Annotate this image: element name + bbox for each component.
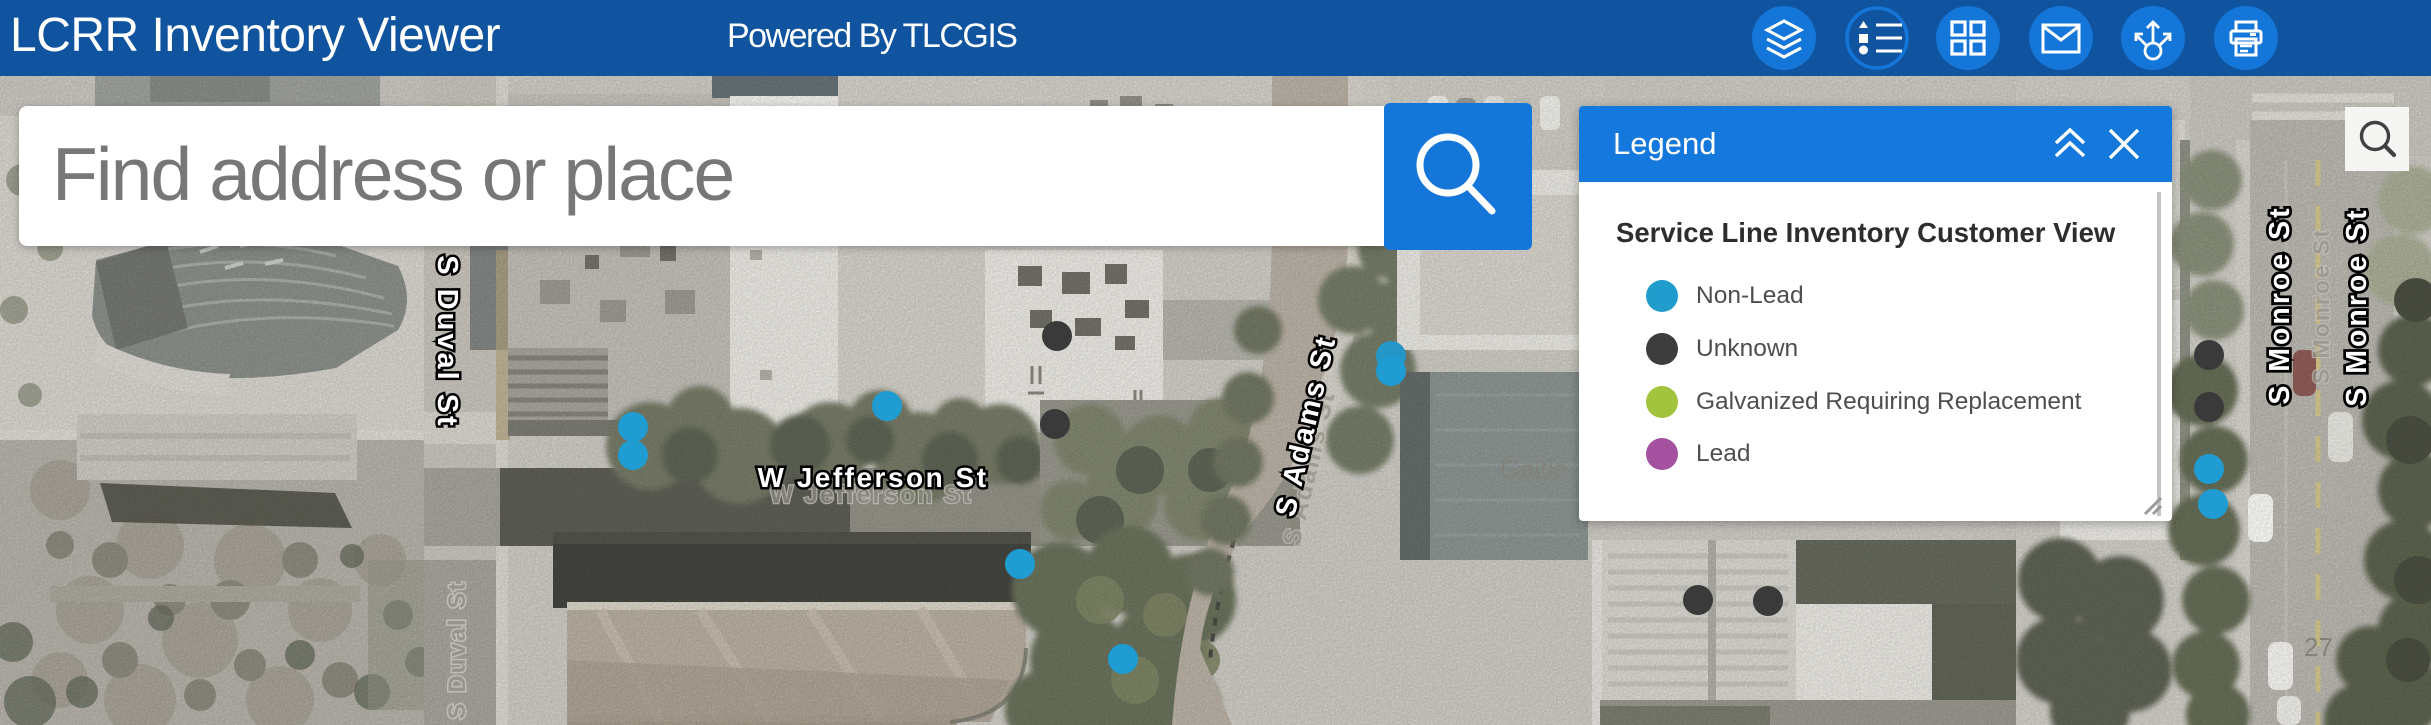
svg-text:S Monroe St: S Monroe St: [2264, 205, 2296, 404]
svg-text:S Monroe St: S Monroe St: [2308, 228, 2334, 384]
svg-text:W Jefferson St: W Jefferson St: [757, 462, 988, 493]
svg-text:S Duval St: S Duval St: [431, 255, 463, 428]
svg-text:S Duval St: S Duval St: [444, 581, 471, 720]
svg-text:S Monroe St: S Monroe St: [2341, 207, 2373, 406]
